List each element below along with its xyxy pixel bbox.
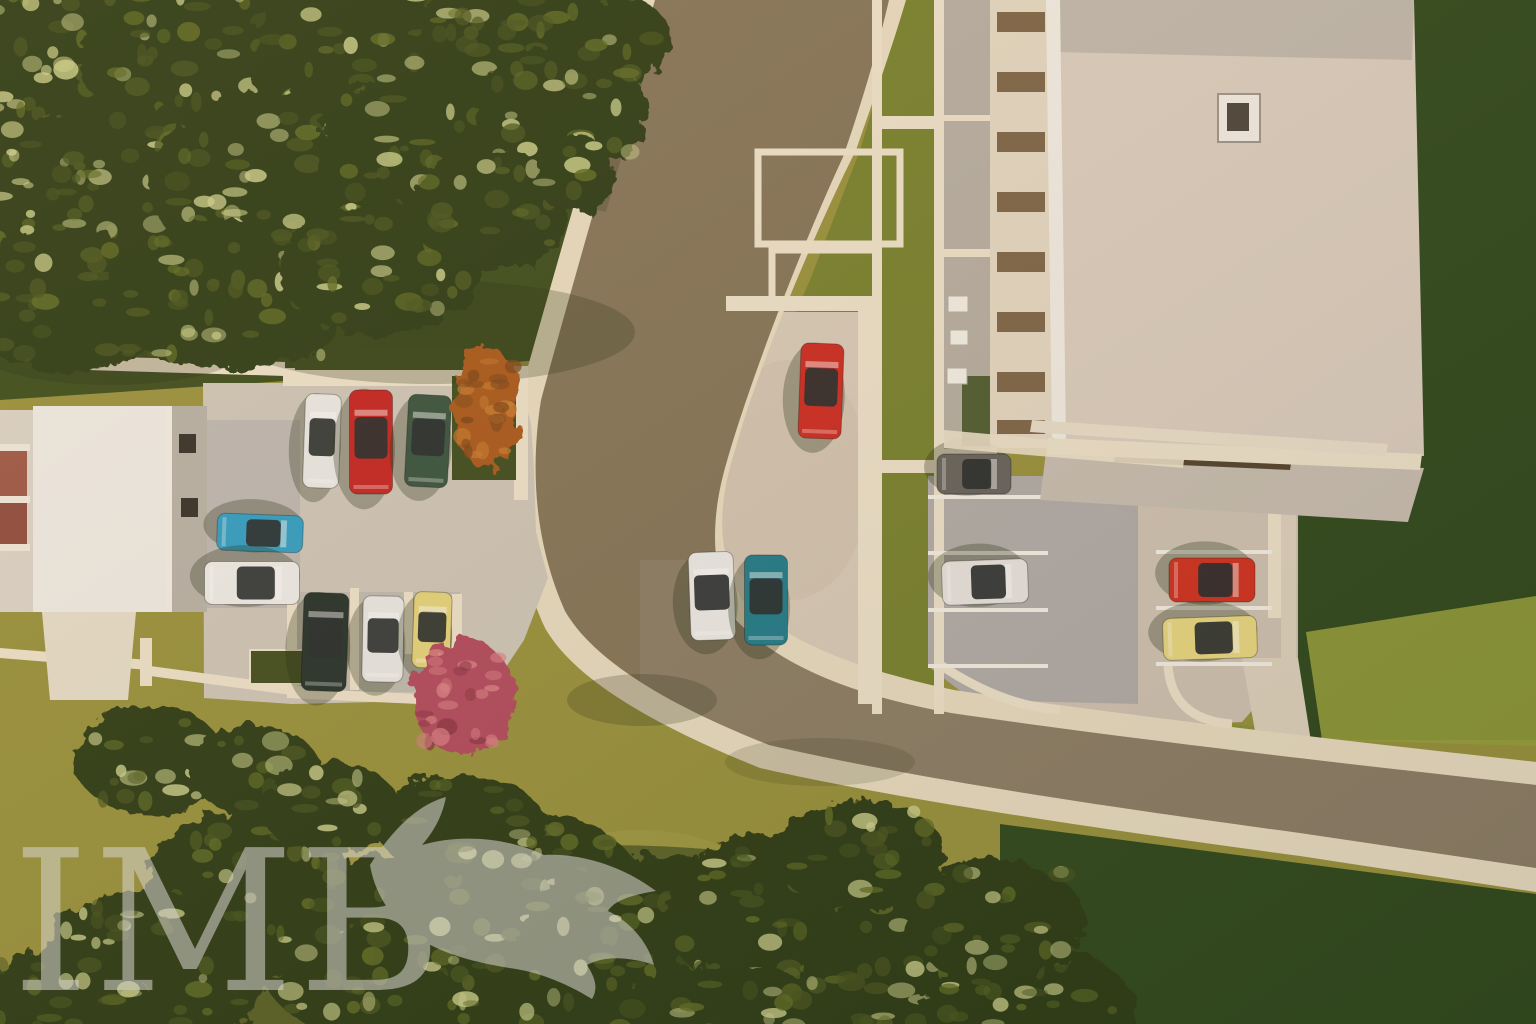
watermark-text: IMB <box>12 809 446 1024</box>
aerial-photo-frame: IMB <box>0 0 1536 1024</box>
aerial-photo: IMB <box>0 0 1536 1024</box>
